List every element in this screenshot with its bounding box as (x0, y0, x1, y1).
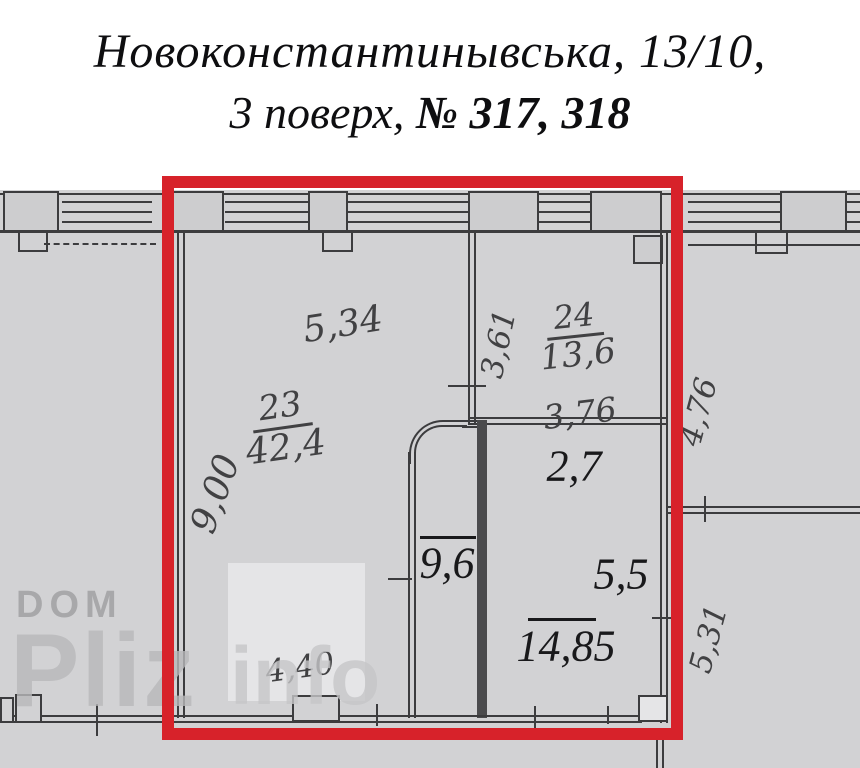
page-title-line2: 3 поверх, № 317, 318 (0, 86, 860, 139)
dimension-tick (704, 496, 706, 522)
radiator-box (755, 231, 788, 254)
wall-right-room-horizontal (668, 506, 860, 514)
page-title-line1: Новоконстантинывська, 13/10, (0, 24, 860, 79)
floor-plan-scan: Новоконстантинывська, 13/10, 3 поверх, №… (0, 0, 860, 768)
radiator-box (18, 231, 48, 252)
window-strip (62, 201, 152, 223)
window-strip (846, 201, 860, 223)
wall-face-dashed-line (44, 243, 156, 245)
floor-label: 3 поверх, (230, 87, 405, 138)
unit-numbers: № 317, 318 (416, 87, 631, 138)
wall-pillar (780, 191, 847, 232)
wall-face-line-right (688, 244, 860, 246)
wall-below-frame (656, 740, 664, 768)
highlight-frame (162, 176, 683, 740)
window-strip (688, 201, 780, 223)
wall-pillar (3, 191, 59, 232)
